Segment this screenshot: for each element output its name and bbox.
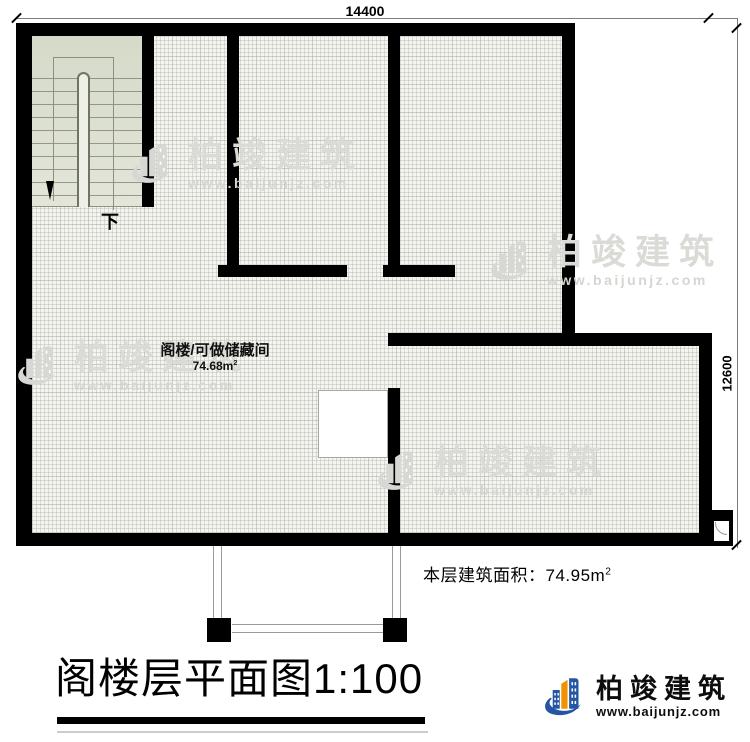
porch-line [400, 546, 401, 618]
wall-right-upper [562, 23, 575, 346]
wall-middle-horizontal [388, 333, 712, 346]
stair-down-arrow-icon [46, 181, 54, 200]
wall-stair-side [142, 36, 154, 207]
company-name: 柏竣建筑 [596, 675, 732, 703]
room-name-label: 阁楼/可做储藏间 [130, 339, 300, 360]
title-underline-thin [57, 731, 428, 733]
company-url: www.baijunjz.com [596, 704, 732, 719]
sheet-title-scale: 1:100 [313, 655, 423, 702]
floor-plan-sheet: 下 14400 12600 阁楼/可做储藏间 74.68m2 本层建筑面积：74… [0, 0, 750, 742]
floor-area-label: 本层建筑面积： [423, 566, 546, 585]
stair-railing [77, 72, 90, 207]
wall-interior-b-flange [383, 265, 455, 277]
sheet-title: 阁楼层平面图1:100 [55, 645, 423, 706]
flue-arc [715, 522, 727, 535]
room-area-label: 74.68m2 [130, 358, 300, 373]
sheet-title-text: 阁楼层平面图 [55, 655, 313, 702]
column-right [383, 618, 407, 642]
dimension-line-right [737, 18, 738, 548]
wall-lower-room-left [388, 388, 400, 546]
dimension-label-width: 14400 [320, 3, 410, 19]
corner-flue-inner [714, 521, 729, 541]
wall-bottom [16, 533, 733, 546]
staircase [32, 36, 142, 207]
wall-interior-a [227, 36, 239, 265]
stair-path-line [53, 57, 54, 201]
room-area-value: 74.68m [193, 359, 234, 373]
floor-area-value: 74.95m [546, 566, 606, 585]
stair-path-line [53, 57, 114, 58]
company-logo-icon [541, 669, 591, 725]
title-underline-thick [57, 717, 425, 724]
porch-line [221, 546, 222, 618]
company-logo: 柏竣建筑 www.baijunjz.com [541, 669, 732, 725]
wall-interior-b [388, 36, 400, 265]
floor-area-sup: 2 [605, 566, 611, 577]
dimension-label-height: 12600 [720, 342, 735, 406]
wall-top [16, 23, 575, 36]
wall-interior-a-flange [218, 265, 347, 277]
porch-line [392, 546, 393, 618]
room-area-sup: 2 [233, 358, 237, 367]
floor-void-opening [318, 390, 388, 458]
floor-area-note: 本层建筑面积：74.95m2 [423, 561, 611, 586]
stair-path-line [113, 57, 114, 210]
stair-down-label: 下 [101, 208, 119, 234]
wall-right-lower [699, 333, 712, 546]
wall-left [16, 23, 32, 546]
porch-line [232, 624, 383, 625]
porch-line [232, 632, 383, 633]
porch-line [213, 546, 214, 618]
column-left [207, 618, 231, 642]
room-fill-lower-right [400, 346, 699, 533]
